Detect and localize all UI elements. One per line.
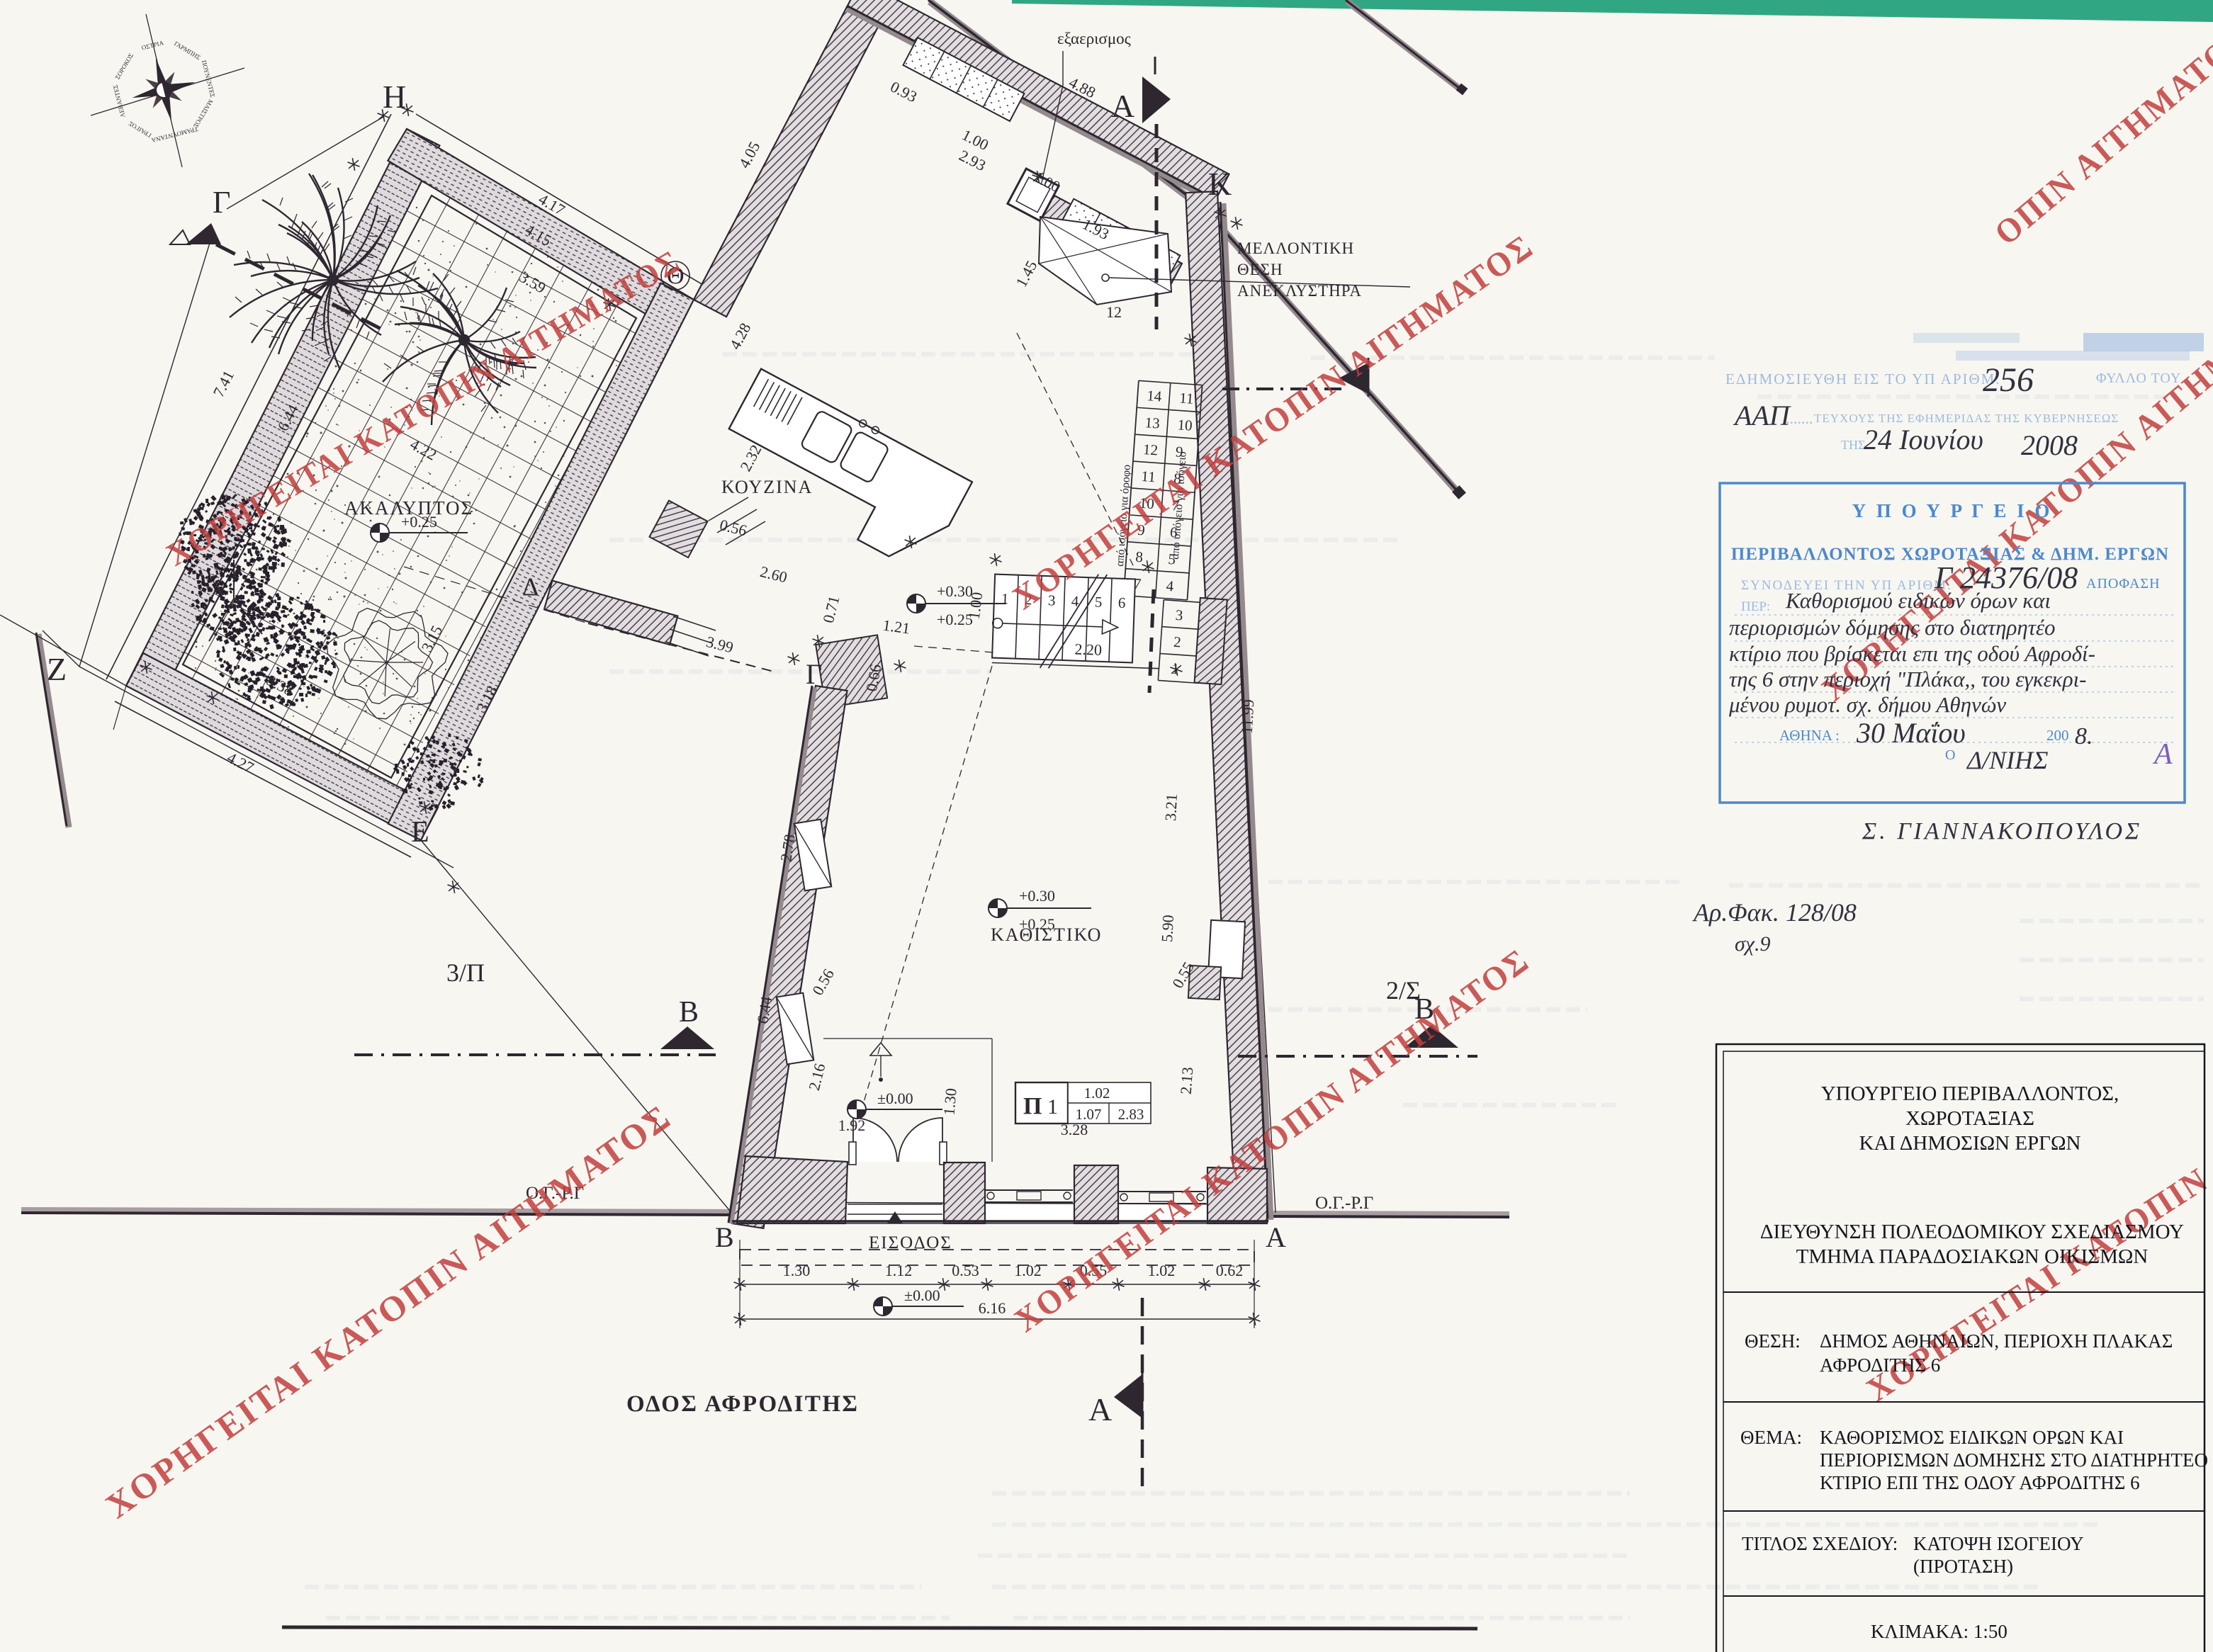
svg-text:12: 12 (1142, 441, 1159, 458)
svg-text:ΘΕΣΗ: ΘΕΣΗ (1237, 261, 1283, 278)
svg-text:ΚΛΙΜΑΚΑ: 1:50: ΚΛΙΜΑΚΑ: 1:50 (1871, 1621, 2008, 1642)
svg-text:1: 1 (1001, 590, 1009, 607)
svg-text:+0.25: +0.25 (401, 513, 437, 531)
svg-text:Καθορισμού ειδικών όρων και: Καθορισμού ειδικών όρων και (1785, 588, 2051, 613)
svg-text:ΚΑΤΟΨΗ ΙΣΟΓΕΙΟΥ: ΚΑΤΟΨΗ ΙΣΟΓΕΙΟΥ (1913, 1533, 2084, 1554)
svg-text:+0.30: +0.30 (1019, 887, 1055, 905)
svg-text:περιορισμών δόμησης στο διατηρ: περιορισμών δόμησης στο διατηρητέο (1729, 615, 2056, 640)
svg-text:Ο.Γ.-Ρ.Γ: Ο.Γ.-Ρ.Γ (1315, 1194, 1373, 1213)
svg-text:8.: 8. (2075, 723, 2093, 749)
svg-text:ΔΗΜΟΣ ΑΘΗΝΑΙΩΝ, ΠΕΡΙΟΧΗ ΠΛΑΚΑΣ: ΔΗΜΟΣ ΑΘΗΝΑΙΩΝ, ΠΕΡΙΟΧΗ ΠΛΑΚΑΣ (1820, 1330, 2173, 1352)
svg-text:Δ/ΝΙΗΣ: Δ/ΝΙΗΣ (1966, 746, 2049, 774)
svg-text:Α: Α (1088, 1391, 1112, 1427)
svg-text:13: 13 (1144, 414, 1161, 431)
svg-text:1: 1 (1047, 1095, 1058, 1119)
svg-text:Κ: Κ (1208, 166, 1232, 202)
svg-text:ΥΠΟΥΡΓΕΙΟ ΠΕΡΙΒΑΛΛΟΝΤΟΣ,: ΥΠΟΥΡΓΕΙΟ ΠΕΡΙΒΑΛΛΟΝΤΟΣ, (1821, 1082, 2119, 1105)
svg-text:1.00: 1.00 (965, 591, 986, 620)
svg-text:ΜΕΛΛΟΝΤΙΚΗ: ΜΕΛΛΟΝΤΙΚΗ (1237, 239, 1354, 257)
svg-text:Α: Α (2152, 738, 2173, 771)
svg-text:Γ: Γ (213, 185, 230, 220)
svg-text:σχ.9: σχ.9 (1735, 932, 1771, 956)
svg-text:εξαερισμος: εξαερισμος (1057, 30, 1131, 47)
svg-text:ΚΟΥΖΙΝΑ: ΚΟΥΖΙΝΑ (721, 477, 813, 497)
svg-text:1.21: 1.21 (882, 616, 911, 638)
svg-text:ΑΑΠ: ΑΑΠ (1733, 400, 1791, 431)
svg-text:ΕΔΗΜΟΣΙΕΥΘΗ ΕΙΣ ΤΟ ΥΠ ΑΡΙΘΜ.: ΕΔΗΜΟΣΙΕΥΘΗ ΕΙΣ ΤΟ ΥΠ ΑΡΙΘΜ. (1725, 370, 2001, 387)
svg-text:30 Μαΐου: 30 Μαΐου (1856, 717, 1966, 749)
svg-text:3/Π: 3/Π (446, 958, 485, 987)
svg-text:3: 3 (1175, 606, 1183, 624)
svg-text:11.99: 11.99 (1238, 699, 1258, 735)
svg-text:Αρ.Φακ. 128/08: Αρ.Φακ. 128/08 (1692, 898, 1857, 927)
svg-text:Υ Π Ο Υ Ρ Γ Ε Ι Ο: Υ Π Ο Υ Ρ Γ Ε Ι Ο (1852, 500, 2053, 521)
svg-text:1.30: 1.30 (940, 1087, 959, 1116)
svg-text:11: 11 (1178, 389, 1194, 407)
svg-text:2.13: 2.13 (1177, 1066, 1197, 1094)
svg-text:Γ: Γ (806, 658, 822, 690)
svg-text:ΕΙΣΟΔΟΣ: ΕΙΣΟΔΟΣ (869, 1233, 952, 1252)
svg-text:ΔΙΕΥΘΥΝΣΗ ΠΟΛΕΟΔΟΜΙΚΟΥ ΣΧΕΔΙΑΣ: ΔΙΕΥΘΥΝΣΗ ΠΟΛΕΟΔΟΜΙΚΟΥ ΣΧΕΔΙΑΣΜΟΥ (1760, 1221, 2184, 1243)
svg-text:14: 14 (1147, 387, 1163, 404)
svg-text:256: 256 (1983, 361, 2034, 399)
svg-text:της 6 στην περιοχή "Πλάκα,, το: της 6 στην περιοχή "Πλάκα,, του εγκεκρι- (1729, 667, 2087, 691)
svg-text:ΘΕΣΗ:: ΘΕΣΗ: (1745, 1330, 1801, 1352)
svg-text:ΚΑΘΟΡΙΣΜΟΣ ΕΙΔΙΚΩΝ ΟΡΩΝ ΚΑΙ: ΚΑΘΟΡΙΣΜΟΣ ΕΙΔΙΚΩΝ ΟΡΩΝ ΚΑΙ (1820, 1427, 2124, 1448)
svg-text:2.20: 2.20 (1074, 640, 1102, 659)
svg-text:ΑΝΕΚΛΥΣΤΗΡΑ: ΑΝΕΚΛΥΣΤΗΡΑ (1237, 282, 1362, 300)
svg-text:ΠΕΡ:: ΠΕΡ: (1741, 599, 1770, 614)
svg-text:ΑΠΟΦΑΣΗ: ΑΠΟΦΑΣΗ (2086, 576, 2161, 592)
svg-text:κτίριο που βρίσκεται επι της ο: κτίριο που βρίσκεται επι της οδού Αφροδί… (1729, 641, 2095, 666)
svg-text:8: 8 (1135, 548, 1144, 566)
svg-text:ΠΕΡΙΟΡΙΣΜΩΝ ΔΟΜΗΣΗΣ ΣΤΟ ΔΙΑΤΗΡ: ΠΕΡΙΟΡΙΣΜΩΝ ΔΟΜΗΣΗΣ ΣΤΟ ΔΙΑΤΗΡΗΤΕΟ (1820, 1449, 2208, 1471)
svg-text:5.90: 5.90 (1158, 915, 1177, 943)
svg-text:Ε: Ε (411, 816, 429, 849)
svg-text:1.02: 1.02 (1084, 1085, 1110, 1102)
svg-text:ΚΑΙ ΔΗΜΟΣΙΩΝ ΕΡΓΩΝ: ΚΑΙ ΔΗΜΟΣΙΩΝ ΕΡΓΩΝ (1859, 1132, 2081, 1155)
svg-text:12: 12 (1106, 303, 1122, 321)
svg-text:μένου ρυμοτ. σχ. δήμου Αθηνών: μένου ρυμοτ. σχ. δήμου Αθηνών (1728, 692, 2006, 717)
svg-text:Δ: Δ (522, 572, 539, 601)
svg-text:0.62: 0.62 (1216, 1262, 1244, 1279)
svg-text:0.53: 0.53 (952, 1262, 979, 1279)
svg-text:ΑΦΡΟΔΙΤΗΣ 6: ΑΦΡΟΔΙΤΗΣ 6 (1820, 1354, 1940, 1376)
svg-text:Β: Β (679, 996, 699, 1029)
svg-text:1.02: 1.02 (1148, 1262, 1176, 1279)
svg-text:3.28: 3.28 (1061, 1121, 1088, 1138)
svg-text:1.92: 1.92 (838, 1116, 866, 1134)
svg-text:Α: Α (1111, 88, 1134, 124)
svg-text:ΑΘΗΝΑ :: ΑΘΗΝΑ : (1779, 727, 1840, 744)
svg-text:.......: ....... (1786, 409, 1813, 427)
svg-text:ΚΤΙΡΙΟ ΕΠΙ ΤΗΣ ΟΔΟΥ ΑΦΡΟΔΙΤΗΣ: ΚΤΙΡΙΟ ΕΠΙ ΤΗΣ ΟΔΟΥ ΑΦΡΟΔΙΤΗΣ 6 (1820, 1472, 2140, 1493)
svg-text:Η: Η (383, 79, 406, 115)
svg-text:3.21: 3.21 (1161, 793, 1181, 822)
svg-text:Β: Β (715, 1221, 734, 1253)
svg-text:ΦΥΛΛΟ ΤΟΥ: ΦΥΛΛΟ ΤΟΥ (2096, 370, 2181, 386)
svg-text:ΧΩΡΟΤΑΞΙΑΣ: ΧΩΡΟΤΑΞΙΑΣ (1905, 1107, 2034, 1130)
svg-text:2.83: 2.83 (1118, 1106, 1144, 1123)
svg-text:10: 10 (1177, 416, 1193, 434)
svg-text:Π: Π (1023, 1093, 1042, 1119)
svg-text:24 Ιουνίου: 24 Ιουνίου (1864, 424, 1983, 456)
svg-text:2: 2 (1173, 633, 1181, 651)
svg-text:(ΠΡΟΤΑΣΗ): (ΠΡΟΤΑΣΗ) (1913, 1556, 2013, 1577)
svg-text:ΤΙΤΛΟΣ ΣΧΕΔΙΟΥ:: ΤΙΤΛΟΣ ΣΧΕΔΙΟΥ: (1742, 1533, 1898, 1554)
svg-text:5: 5 (1094, 594, 1102, 611)
svg-text:±0.00: ±0.00 (877, 1090, 913, 1107)
svg-text:ΟΔΟΣ ΑΦΡΟΔΙΤΗΣ: ΟΔΟΣ ΑΦΡΟΔΙΤΗΣ (626, 1391, 860, 1417)
svg-text:ΤΜΗΜΑ ΠΑΡΑΔΟΣΙΑΚΩΝ ΟΙΚΙΣΜΩΝ: ΤΜΗΜΑ ΠΑΡΑΔΟΣΙΑΚΩΝ ΟΙΚΙΣΜΩΝ (1796, 1245, 2149, 1268)
svg-text:200: 200 (2046, 727, 2069, 744)
svg-text:±0.00: ±0.00 (904, 1286, 940, 1304)
svg-text:Ο: Ο (1945, 747, 1955, 763)
svg-text:1.12: 1.12 (885, 1262, 913, 1279)
svg-text:+0.25: +0.25 (1019, 915, 1055, 933)
svg-text:Σ. ΓΙΑΝΝΑΚΟΠΟΥΛΟΣ: Σ. ΓΙΑΝΝΑΚΟΠΟΥΛΟΣ (1862, 818, 2142, 844)
svg-text:ΘΕΜΑ:: ΘΕΜΑ: (1740, 1427, 1802, 1448)
svg-text:6: 6 (1117, 594, 1125, 611)
svg-text:1.30: 1.30 (783, 1262, 811, 1279)
svg-text:Ζ: Ζ (47, 651, 67, 687)
svg-text:6.16: 6.16 (979, 1299, 1006, 1317)
svg-text:2/Σ: 2/Σ (1386, 976, 1421, 1005)
svg-text:1.02: 1.02 (1014, 1262, 1042, 1279)
svg-text:Α: Α (1266, 1221, 1286, 1253)
svg-text:2008: 2008 (2021, 429, 2078, 461)
svg-text:ΤΗΣ: ΤΗΣ (1841, 438, 1865, 452)
